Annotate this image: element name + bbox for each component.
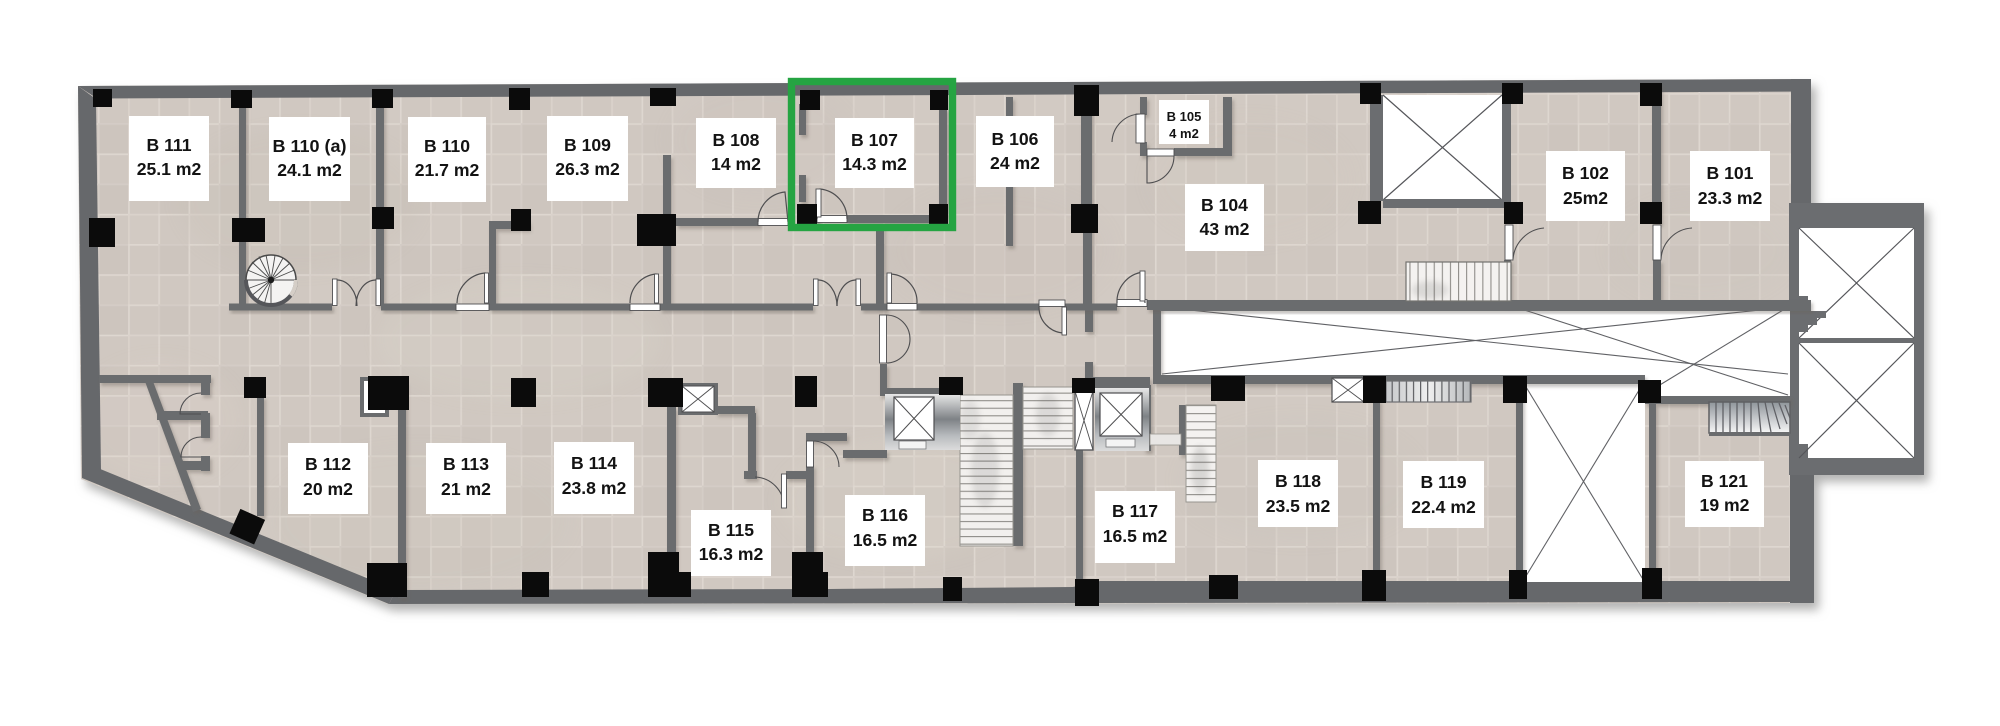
svg-text:B 112: B 112	[305, 454, 351, 474]
svg-text:B 101: B 101	[1707, 163, 1754, 183]
svg-text:16.5 m2: 16.5 m2	[1103, 526, 1168, 546]
svg-text:24 m2: 24 m2	[990, 153, 1040, 173]
svg-text:25.1 m2: 25.1 m2	[137, 159, 202, 179]
svg-text:B 104: B 104	[1201, 195, 1248, 215]
svg-text:23.5 m2: 23.5 m2	[1266, 496, 1331, 516]
svg-text:14.3 m2: 14.3 m2	[842, 154, 907, 174]
svg-text:20 m2: 20 m2	[303, 479, 353, 499]
svg-text:B 119: B 119	[1421, 472, 1467, 492]
svg-text:16.5 m2: 16.5 m2	[853, 530, 918, 550]
svg-text:B 113: B 113	[443, 454, 489, 474]
svg-text:19 m2: 19 m2	[1700, 495, 1750, 515]
svg-text:B 106: B 106	[992, 129, 1039, 149]
svg-text:21 m2: 21 m2	[441, 479, 491, 499]
svg-text:B 116: B 116	[862, 505, 908, 525]
svg-text:21.7 m2: 21.7 m2	[415, 160, 480, 180]
svg-text:14 m2: 14 m2	[711, 154, 761, 174]
svg-text:25m2: 25m2	[1563, 188, 1608, 208]
svg-text:B 118: B 118	[1275, 471, 1321, 491]
svg-text:B 110 (a): B 110 (a)	[273, 136, 347, 156]
svg-text:16.3 m2: 16.3 m2	[699, 544, 764, 564]
svg-text:B 105: B 105	[1167, 109, 1202, 124]
svg-text:B 110: B 110	[424, 136, 470, 156]
svg-text:4 m2: 4 m2	[1169, 126, 1199, 141]
svg-text:22.4 m2: 22.4 m2	[1411, 497, 1476, 517]
svg-text:B 111: B 111	[146, 135, 191, 155]
svg-text:23.8 m2: 23.8 m2	[562, 478, 627, 498]
svg-text:B 107: B 107	[851, 130, 898, 150]
svg-text:B 115: B 115	[708, 520, 754, 540]
svg-text:43 m2: 43 m2	[1200, 219, 1250, 239]
svg-text:23.3 m2: 23.3 m2	[1698, 188, 1763, 208]
svg-text:B 102: B 102	[1562, 163, 1609, 183]
svg-text:26.3 m2: 26.3 m2	[555, 159, 620, 179]
svg-text:24.1 m2: 24.1 m2	[277, 160, 342, 180]
svg-text:B 109: B 109	[564, 135, 611, 155]
svg-text:B 117: B 117	[1112, 501, 1158, 521]
svg-text:B 108: B 108	[713, 130, 760, 150]
svg-text:B 114: B 114	[571, 453, 617, 473]
svg-text:B 121: B 121	[1701, 471, 1748, 491]
